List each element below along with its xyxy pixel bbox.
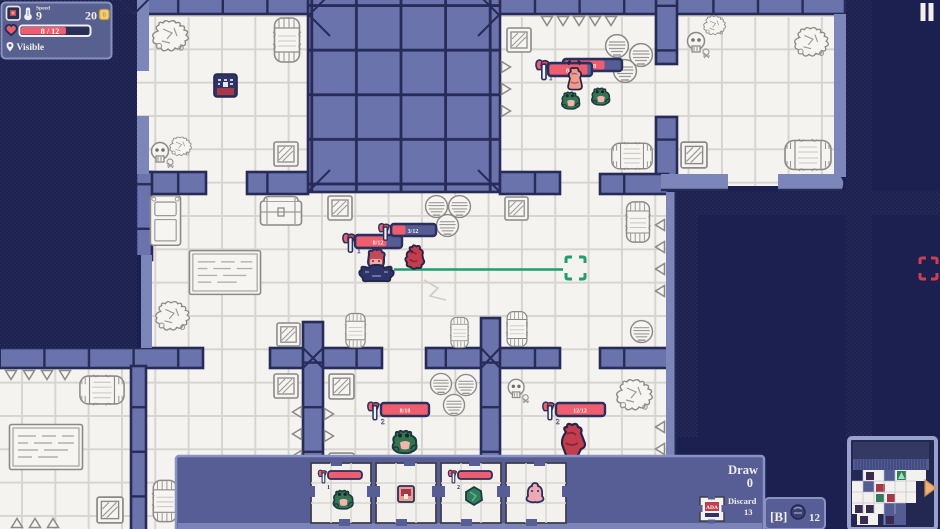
svg-text:2: 2 [381, 418, 385, 426]
svg-text:13: 13 [744, 507, 753, 517]
svg-text:9: 9 [36, 9, 42, 23]
svg-text:8 / 12: 8 / 12 [41, 27, 60, 36]
svg-text:[B]: [B] [770, 509, 787, 524]
svg-text:12: 12 [809, 512, 821, 524]
svg-text:0: 0 [102, 11, 106, 19]
svg-text:ADA: ADA [706, 505, 718, 511]
svg-text:8/18: 8/18 [400, 409, 411, 415]
svg-text:8/12: 8/12 [373, 241, 384, 247]
svg-text:Discard: Discard [728, 496, 757, 506]
svg-text:2: 2 [457, 485, 460, 491]
svg-text:20: 20 [85, 9, 97, 23]
svg-text:Visible: Visible [17, 43, 45, 53]
svg-text:2: 2 [556, 418, 560, 426]
svg-text:Draw: Draw [728, 463, 758, 477]
svg-text:12/12: 12/12 [573, 409, 587, 415]
svg-text:0: 0 [747, 476, 753, 490]
svg-text:1: 1 [327, 485, 330, 491]
svg-text:3/12: 3/12 [408, 229, 419, 235]
